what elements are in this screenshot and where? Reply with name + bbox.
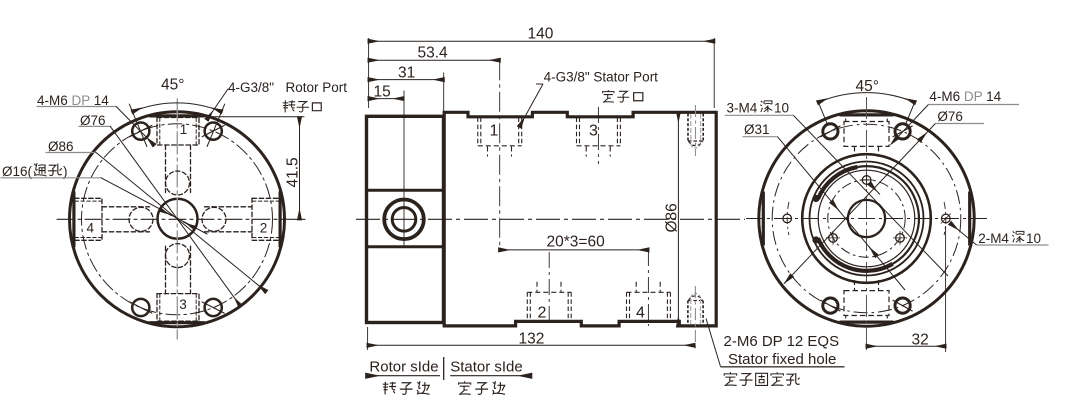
svg-text:4-M6 DP 14: 4-M6 DP 14 — [929, 89, 1001, 104]
svg-text:Ø76: Ø76 — [80, 113, 106, 128]
svg-text:2-M4: 2-M4 — [978, 231, 1009, 246]
svg-text:4-G3/8" Stator Port: 4-G3/8" Stator Port — [544, 70, 659, 85]
svg-text:41.5: 41.5 — [285, 157, 302, 187]
svg-text:10: 10 — [1026, 231, 1041, 246]
svg-text:45°: 45° — [161, 77, 184, 94]
svg-text:Ø31: Ø31 — [744, 122, 770, 137]
svg-text:45°: 45° — [856, 78, 879, 95]
svg-text:): ) — [63, 164, 68, 179]
svg-text:15: 15 — [374, 84, 391, 101]
svg-text:2-M6 DP 12 EQS: 2-M6 DP 12 EQS — [724, 333, 840, 350]
svg-text:4: 4 — [636, 305, 645, 322]
svg-text:2: 2 — [538, 305, 547, 322]
svg-text:3: 3 — [589, 122, 598, 139]
svg-text:Rotor sIde: Rotor sIde — [369, 359, 438, 376]
svg-text:132: 132 — [519, 331, 545, 348]
svg-text:Stator sIde: Stator sIde — [450, 359, 523, 376]
svg-text:4-G3/8": 4-G3/8" — [228, 80, 274, 95]
svg-text:1: 1 — [180, 122, 188, 137]
svg-text:Ø86: Ø86 — [48, 139, 74, 154]
svg-text:3-M4: 3-M4 — [727, 101, 758, 116]
svg-text:Ø76: Ø76 — [937, 109, 963, 124]
svg-text:1: 1 — [490, 122, 499, 139]
svg-text:53.4: 53.4 — [418, 45, 449, 62]
svg-text:140: 140 — [528, 26, 554, 43]
svg-text:Ø16(: Ø16( — [2, 164, 33, 179]
svg-text:3: 3 — [179, 297, 187, 312]
svg-text:32: 32 — [912, 332, 929, 349]
svg-text:20*3=60: 20*3=60 — [547, 234, 606, 251]
svg-text:Stator fixed hole: Stator fixed hole — [728, 351, 836, 368]
svg-text:4: 4 — [87, 221, 95, 236]
svg-text:31: 31 — [398, 65, 415, 82]
svg-text:4-M6 DP 14: 4-M6 DP 14 — [37, 93, 109, 108]
svg-text:Rotor Port: Rotor Port — [286, 80, 348, 95]
svg-text:2: 2 — [260, 221, 268, 236]
svg-text:Ø86: Ø86 — [664, 203, 681, 232]
svg-text:10: 10 — [774, 101, 789, 116]
